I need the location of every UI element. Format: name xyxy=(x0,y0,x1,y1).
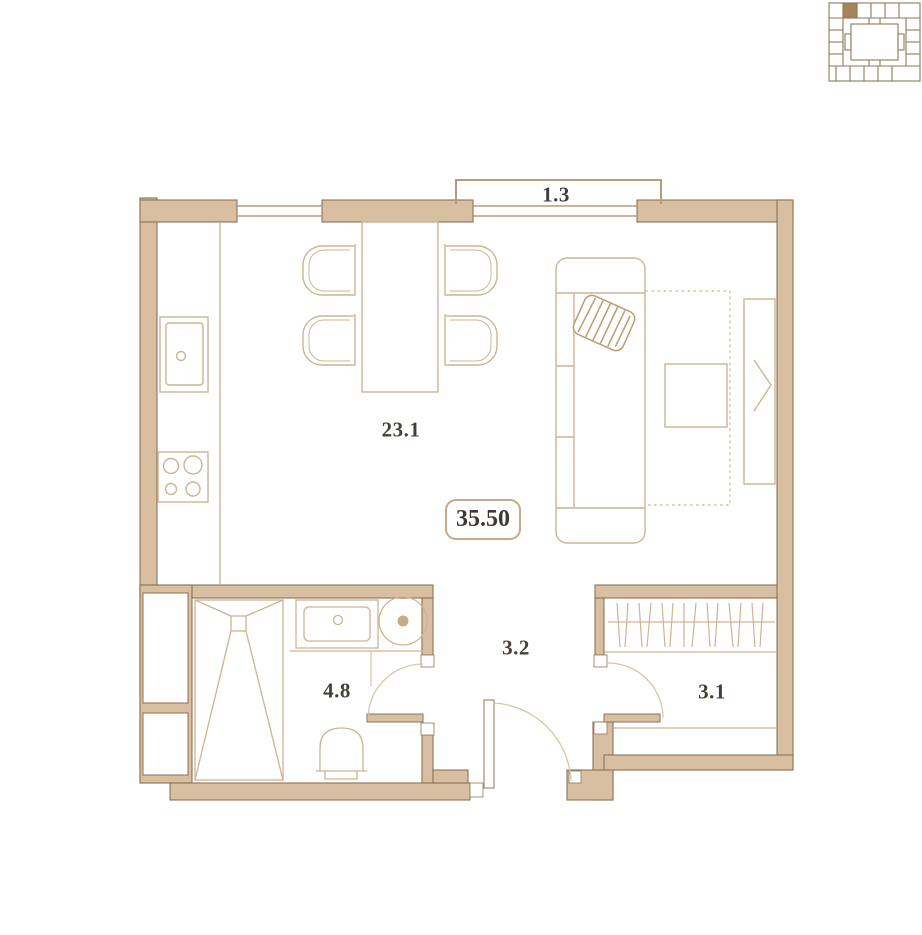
living xyxy=(556,258,775,543)
kitchen-sink-icon xyxy=(160,317,208,392)
kitchen xyxy=(158,222,220,585)
coffee-table-icon xyxy=(665,364,727,427)
shower-icon xyxy=(195,600,283,780)
wall-wardrobe-left xyxy=(595,598,604,655)
wall-bathroom-right-lower xyxy=(422,735,433,783)
wall-bottom-band xyxy=(170,783,470,800)
washing-machine-icon xyxy=(379,597,427,645)
dining xyxy=(303,222,497,392)
wall-wardrobe-top xyxy=(595,585,777,598)
total-area-badge: 35.50 xyxy=(445,499,521,540)
wall-top-a xyxy=(140,200,237,222)
window-balcony xyxy=(473,206,637,216)
vanity-sink-icon xyxy=(290,600,423,686)
tv-unit-icon xyxy=(744,299,775,484)
entrance-threshold-left xyxy=(433,770,468,783)
room-label-wardrobe: 3.1 xyxy=(698,680,726,705)
wall-right xyxy=(777,200,793,770)
room-label-living-kitchen: 23.1 xyxy=(382,418,421,443)
floor-plan: 1.3 23.1 4.8 3.2 3.1 35.50 xyxy=(0,0,922,935)
entrance-door xyxy=(484,700,571,788)
toilet-icon xyxy=(316,728,367,779)
key-plan-highlighted-unit xyxy=(843,3,857,18)
chair-icon xyxy=(303,244,355,296)
building-key-plan-icon xyxy=(829,3,920,81)
chair-icon xyxy=(303,314,355,366)
wall-wardrobe-bottom xyxy=(604,755,793,770)
floor-plan-drawing xyxy=(0,0,922,935)
stove-4-burner-icon xyxy=(158,452,208,502)
room-label-hallway: 3.2 xyxy=(502,636,530,661)
closet-hangers-icon xyxy=(604,603,777,728)
wall-top-b xyxy=(322,200,473,222)
room-label-balcony: 1.3 xyxy=(542,183,570,208)
wardrobe-door xyxy=(604,663,663,722)
window-left xyxy=(237,206,322,216)
bathroom-fixtures xyxy=(195,597,427,780)
chair-icon xyxy=(445,314,497,366)
chair-icon xyxy=(445,244,497,296)
wall-bathroom-right-upper xyxy=(422,598,433,655)
dining-table-icon xyxy=(362,222,438,392)
total-area-value: 35.50 xyxy=(456,506,510,533)
duct-shaft-icon xyxy=(143,593,188,775)
room-label-bathroom: 4.8 xyxy=(323,679,351,704)
bathroom-door xyxy=(367,664,423,722)
